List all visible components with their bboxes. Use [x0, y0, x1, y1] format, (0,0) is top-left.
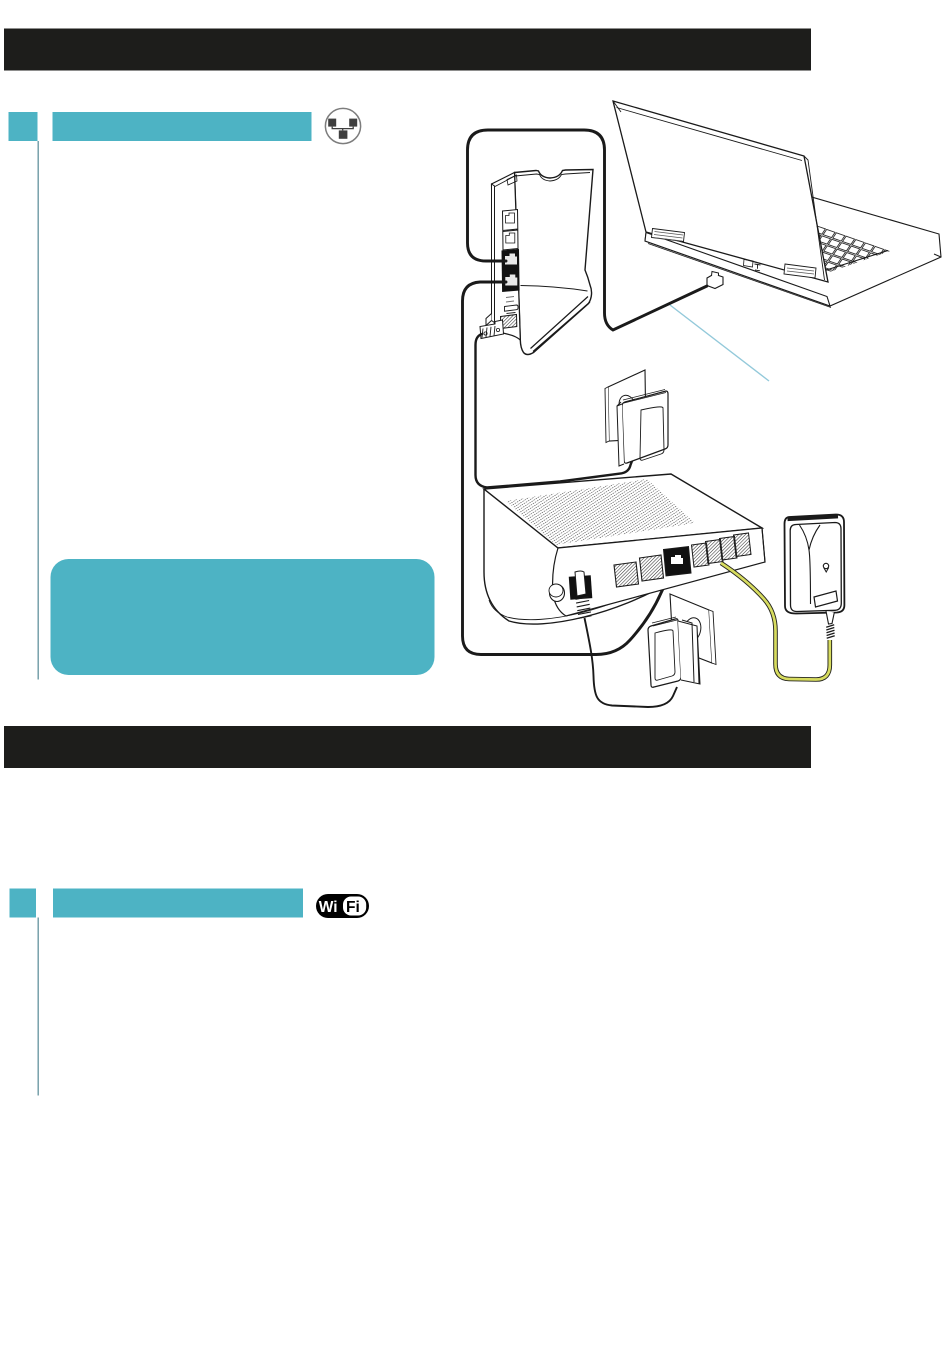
svg-text:Wi: Wi — [319, 899, 338, 916]
svg-text:Fi: Fi — [346, 899, 360, 916]
